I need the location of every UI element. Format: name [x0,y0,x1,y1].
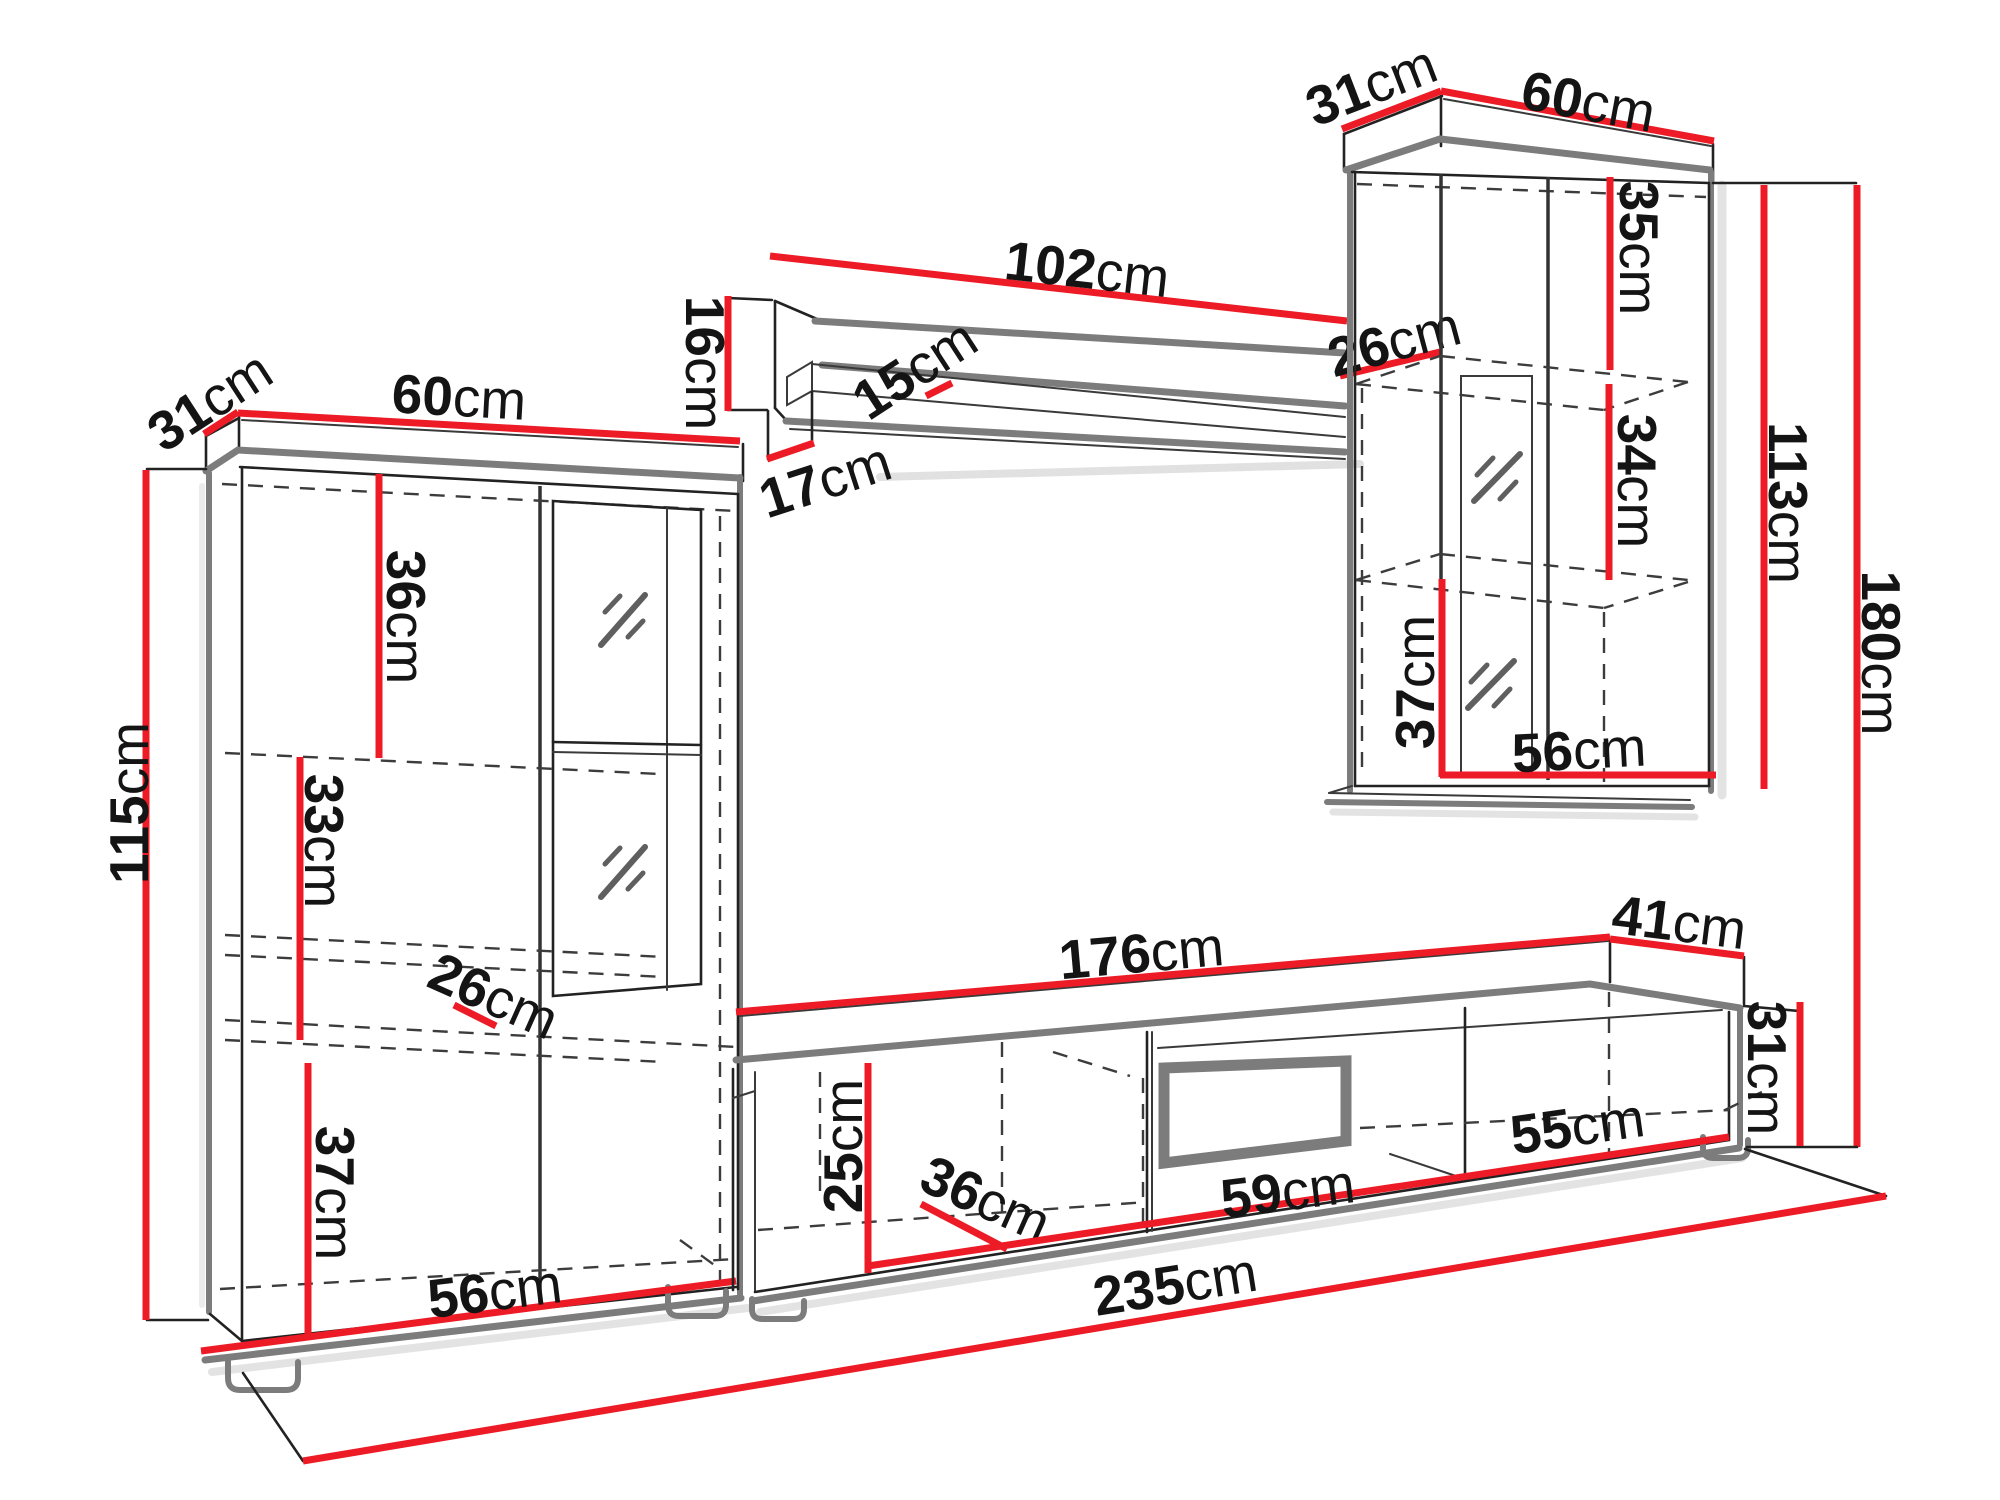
svg-text:180cm: 180cm [1850,570,1912,735]
svg-text:16cm: 16cm [674,296,736,431]
svg-text:35cm: 35cm [1608,181,1670,316]
svg-text:31cm: 31cm [1736,1001,1798,1136]
svg-text:25cm: 25cm [812,1079,874,1214]
svg-text:115cm: 115cm [98,722,160,884]
svg-text:60cm: 60cm [390,362,528,431]
svg-text:34cm: 34cm [1606,414,1668,549]
svg-text:56cm: 56cm [1510,716,1648,785]
svg-text:37cm: 37cm [1384,615,1446,750]
svg-text:37cm: 37cm [304,1126,366,1261]
svg-text:113cm: 113cm [1757,422,1819,584]
svg-text:36cm: 36cm [375,550,437,685]
svg-text:33cm: 33cm [293,774,355,909]
